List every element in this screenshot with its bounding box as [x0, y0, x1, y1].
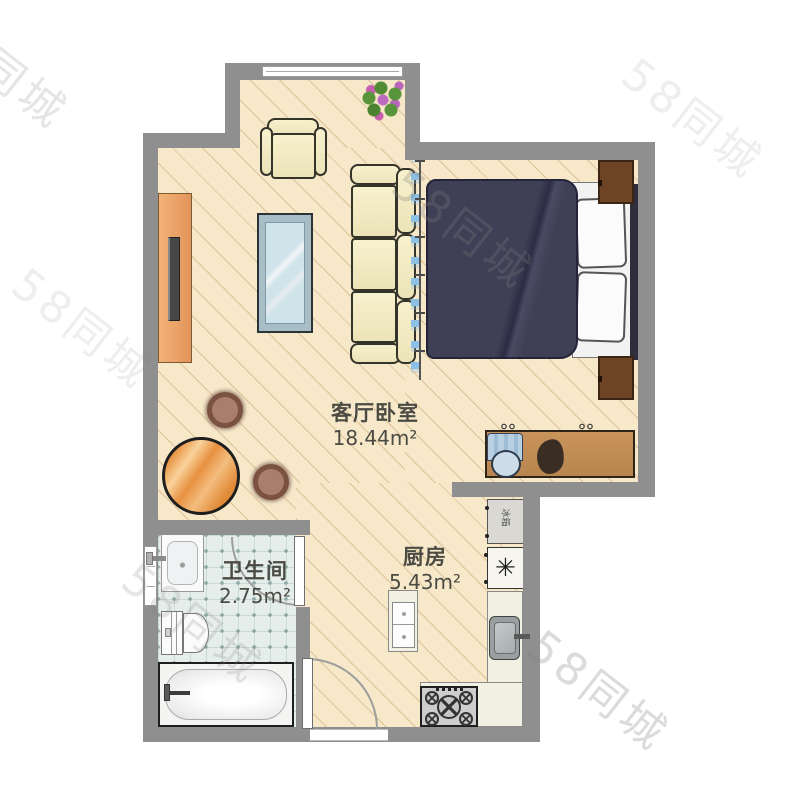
stool-2: [253, 464, 289, 500]
living-bedroom-name: 客厅卧室: [300, 400, 450, 426]
kitchen-label: 厨房 5.43m²: [370, 544, 480, 595]
wall-kitchen-right: [523, 497, 540, 742]
nightstand-bottom-knob: [598, 376, 602, 382]
armchair-seat: [271, 133, 316, 179]
coffee-table-glass: [265, 222, 305, 324]
kitchen-sink-left: [392, 602, 415, 648]
fridge-hinge-dot: [485, 506, 489, 510]
fridge: 冰箱: [487, 499, 524, 544]
bathroom-faucet-knob: [146, 552, 153, 565]
wall-left: [143, 133, 158, 742]
wall-living-bottom: [452, 482, 655, 497]
floorplan-canvas: 冰箱 ✳ 客厅卧室 18.44m² 厨房 5.43m² 卫生间 2.75m² 5…: [0, 0, 800, 800]
curtain-divider-ticks: [415, 160, 425, 380]
bathroom-sink-basin: [167, 541, 198, 585]
water-heater-hinge-dot: [484, 553, 488, 557]
bathtub-faucet-handle: [164, 684, 170, 701]
toilet-bowl: [183, 613, 209, 653]
living-bedroom-label: 客厅卧室 18.44m²: [300, 400, 450, 451]
stool-1: [207, 392, 243, 428]
bathtub-faucet: [168, 691, 190, 695]
fridge-hinge-dot2: [485, 534, 489, 538]
stove-burner-bottom-right: [459, 712, 473, 726]
wall-bedroom-top: [405, 142, 655, 160]
window-top: [262, 66, 403, 77]
stove-burner-center: [437, 695, 461, 719]
bathroom-area: 2.75m²: [195, 584, 315, 609]
nightstand-bottom: [598, 356, 634, 400]
dining-table: [162, 437, 240, 515]
kitchen-area: 5.43m²: [370, 570, 480, 595]
desk-glasses-right: [578, 423, 594, 430]
plant: [359, 80, 407, 122]
stove-burner-top-right: [459, 691, 473, 705]
bed-pillow-2: [575, 271, 627, 343]
window-bathroom-pane-line2: [147, 586, 155, 587]
sofa-seat-cushion-3: [351, 291, 397, 343]
wall-right: [638, 142, 655, 497]
stove-control-dots: [436, 687, 464, 691]
entry-door-sill: [310, 729, 388, 741]
fridge-label: 冰箱: [500, 508, 513, 526]
water-heater: ✳: [487, 547, 524, 589]
kitchen-sink-right-faucet: [514, 634, 530, 639]
stove-burner-bottom-left: [425, 712, 439, 726]
sofa-seat-cushion-1: [351, 185, 397, 238]
wall-bathroom-top: [143, 520, 310, 535]
desk-glasses-left: [500, 423, 516, 430]
window-bathroom-pane-line: [147, 566, 155, 567]
living-bedroom-area: 18.44m²: [300, 426, 450, 451]
watermark-5: 58同城: [517, 612, 686, 763]
entry-door-leaf: [302, 658, 313, 729]
kitchen-name: 厨房: [370, 544, 480, 570]
water-heater-symbol: ✳: [495, 553, 516, 582]
desk-chair-seat: [491, 450, 521, 478]
sofa-armrest-top: [350, 164, 401, 185]
stove-burner-top-left: [425, 691, 439, 705]
bed-headboard: [630, 184, 638, 360]
window-top-pane-line: [266, 71, 399, 72]
kitchen-sink-right-basin: [494, 622, 516, 654]
water-heater-hinge-dot2: [484, 580, 488, 584]
tv: [168, 237, 180, 321]
bed-pillow-1: [575, 197, 627, 269]
watermark-1: 58同城: [0, 0, 84, 141]
toilet-flush-button: [165, 628, 171, 637]
nightstand-top-knob: [598, 180, 602, 186]
nightstand-top: [598, 160, 634, 204]
bathroom-name: 卫生间: [195, 558, 315, 584]
bathroom-label: 卫生间 2.75m²: [195, 558, 315, 609]
sofa-seat-cushion-2: [351, 238, 397, 291]
sofa-armrest-bottom: [350, 343, 401, 364]
bed-duvet: [426, 179, 578, 359]
